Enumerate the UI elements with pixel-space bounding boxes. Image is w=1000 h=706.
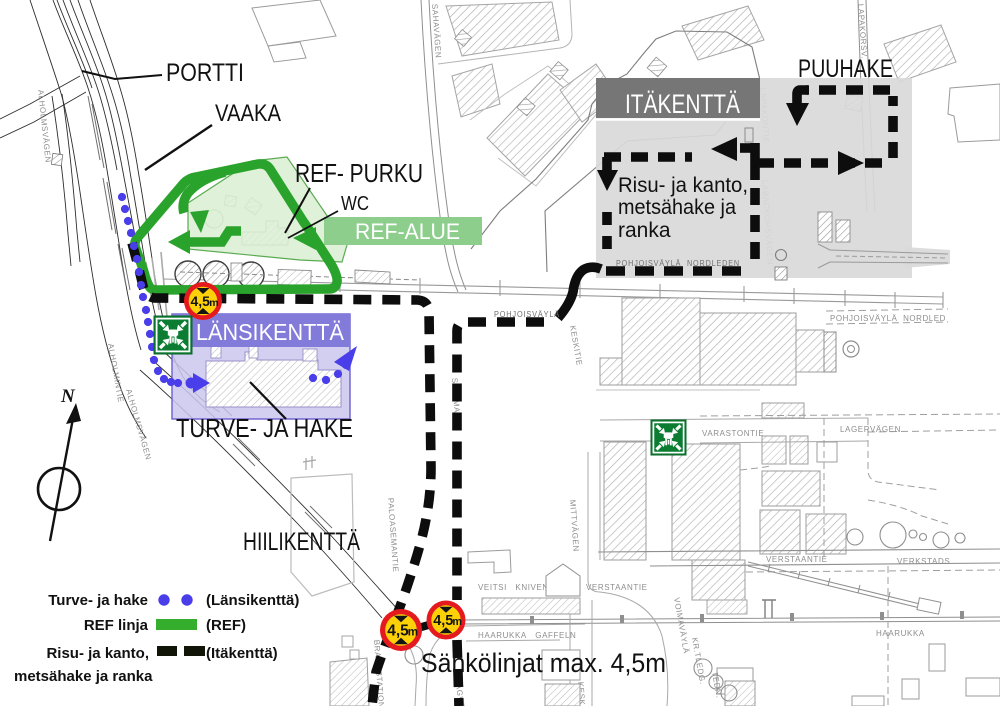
svg-text:REF linja: REF linja (84, 617, 149, 634)
svg-text:VAAKA: VAAKA (215, 100, 281, 127)
svg-text:VERSTAANTIE: VERSTAANTIE (766, 555, 828, 564)
svg-text:Sähkölinjat max. 4,5m: Sähkölinjat max. 4,5m (421, 648, 666, 678)
svg-text:4,5: 4,5 (191, 293, 211, 309)
svg-text:metsähake ja ranka: metsähake ja ranka (14, 668, 153, 685)
svg-text:PORTTI: PORTTI (166, 59, 244, 87)
svg-text:4,5: 4,5 (387, 623, 409, 640)
svg-text:HAARUKKA GAFFELN: HAARUKKA GAFFELN (478, 631, 576, 640)
svg-text:ranka: ranka (618, 219, 671, 242)
svg-text:metsähake ja: metsähake ja (618, 196, 736, 219)
svg-text:POHJOISVÄYLÄ NORDLED: POHJOISVÄYLÄ NORDLED (830, 314, 946, 323)
svg-text:LÄNSIKENTTÄ: LÄNSIKENTTÄ (196, 319, 345, 345)
svg-text:VARASTONTIE: VARASTONTIE (702, 429, 764, 438)
svg-text:POHJOISVÄYLÄ NORDLEDEN: POHJOISVÄYLÄ NORDLEDEN (616, 258, 740, 268)
svg-text:Risu- ja kanto,: Risu- ja kanto, (46, 645, 149, 662)
svg-text:m: m (209, 297, 218, 309)
svg-text:ITÄKENTTÄ: ITÄKENTTÄ (625, 89, 740, 119)
svg-text:HIILIKENTTÄ: HIILIKENTTÄ (243, 528, 360, 556)
svg-text:REF-ALUE: REF-ALUE (355, 219, 460, 244)
svg-text:HAARUKKA: HAARUKKA (876, 629, 925, 638)
svg-text:Risu- ja kanto,: Risu- ja kanto, (618, 174, 748, 197)
svg-text:Turve- ja hake: Turve- ja hake (48, 592, 148, 609)
svg-text:(REF): (REF) (206, 617, 246, 634)
svg-text:WC: WC (341, 193, 369, 215)
svg-text:VEITSI KNIVEN: VEITSI KNIVEN (478, 583, 549, 592)
svg-text:POHJOISVÄYLÄ: POHJOISVÄYLÄ (494, 309, 560, 319)
svg-text:VERKSTADS: VERKSTADS (897, 557, 950, 566)
svg-text:PUUHAKE: PUUHAKE (798, 55, 893, 83)
svg-text:TURVE- JA HAKE: TURVE- JA HAKE (176, 413, 353, 443)
svg-text:4,5: 4,5 (433, 613, 453, 629)
svg-text:m: m (408, 627, 418, 639)
svg-text:REF- PURKU: REF- PURKU (295, 158, 423, 188)
svg-text:(Länsikenttä): (Länsikenttä) (206, 592, 299, 609)
svg-text:LAGERVÄGEN: LAGERVÄGEN (840, 425, 901, 434)
svg-text:VERSTAANTIE: VERSTAANTIE (586, 583, 648, 592)
svg-text:(Itäkenttä): (Itäkenttä) (206, 645, 278, 662)
svg-text:m: m (452, 616, 462, 628)
svg-text:N: N (60, 386, 76, 407)
